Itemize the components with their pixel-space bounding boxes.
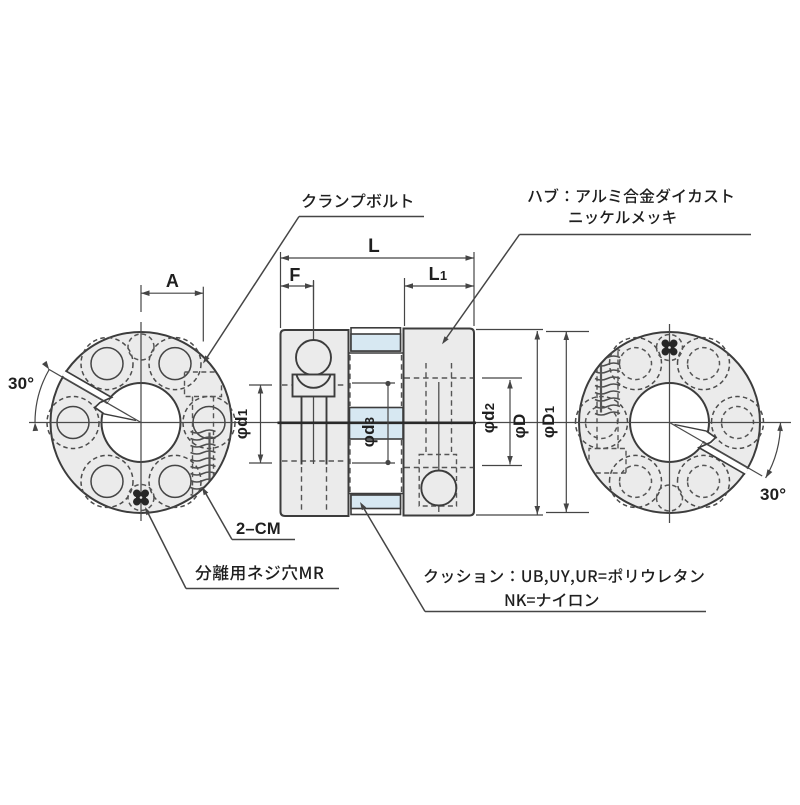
svg-text:φd1: φd1 (232, 409, 251, 439)
svg-text:30°: 30° (8, 374, 34, 393)
svg-text:φd2: φd2 (479, 403, 498, 433)
svg-text:A: A (166, 271, 179, 291)
svg-text:φD1: φD1 (539, 406, 558, 438)
svg-text:30°: 30° (760, 485, 786, 504)
svg-text:φD: φD (510, 414, 529, 439)
svg-text:L: L (368, 236, 380, 257)
svg-text:2–CM: 2–CM (236, 520, 281, 538)
svg-text:F: F (289, 265, 300, 285)
svg-text:φd3: φd3 (359, 417, 378, 447)
